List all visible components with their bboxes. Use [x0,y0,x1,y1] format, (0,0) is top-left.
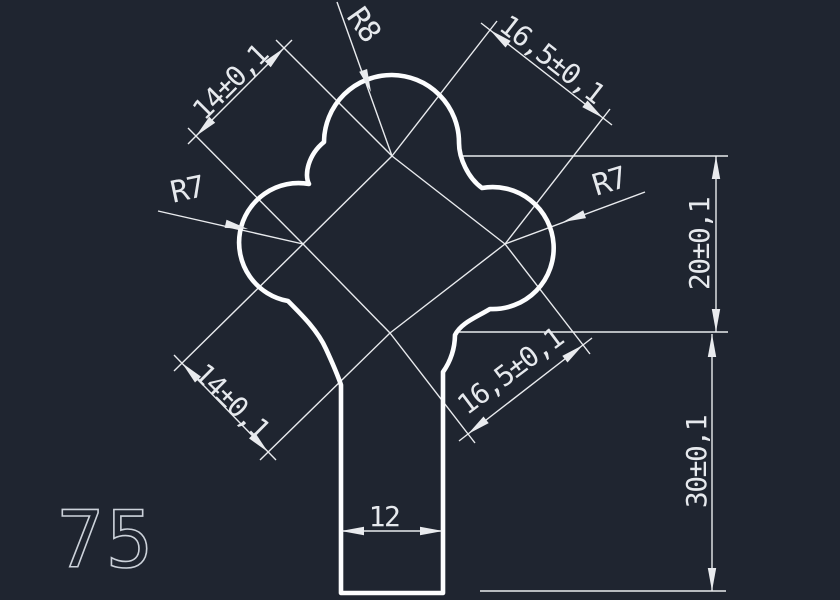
cad-canvas: 14±0,116,5±0,114±0,116,5±0,120±0,130±0,1… [0,0,840,600]
part-number: 75 [57,496,155,586]
cad-drawing: 14±0,116,5±0,114±0,116,5±0,120±0,130±0,1… [0,0,840,600]
dim-label-30: 30±0,1 [680,416,713,508]
dim-label-12: 12 [369,500,400,533]
dim-label-20: 20±0,1 [683,198,716,290]
